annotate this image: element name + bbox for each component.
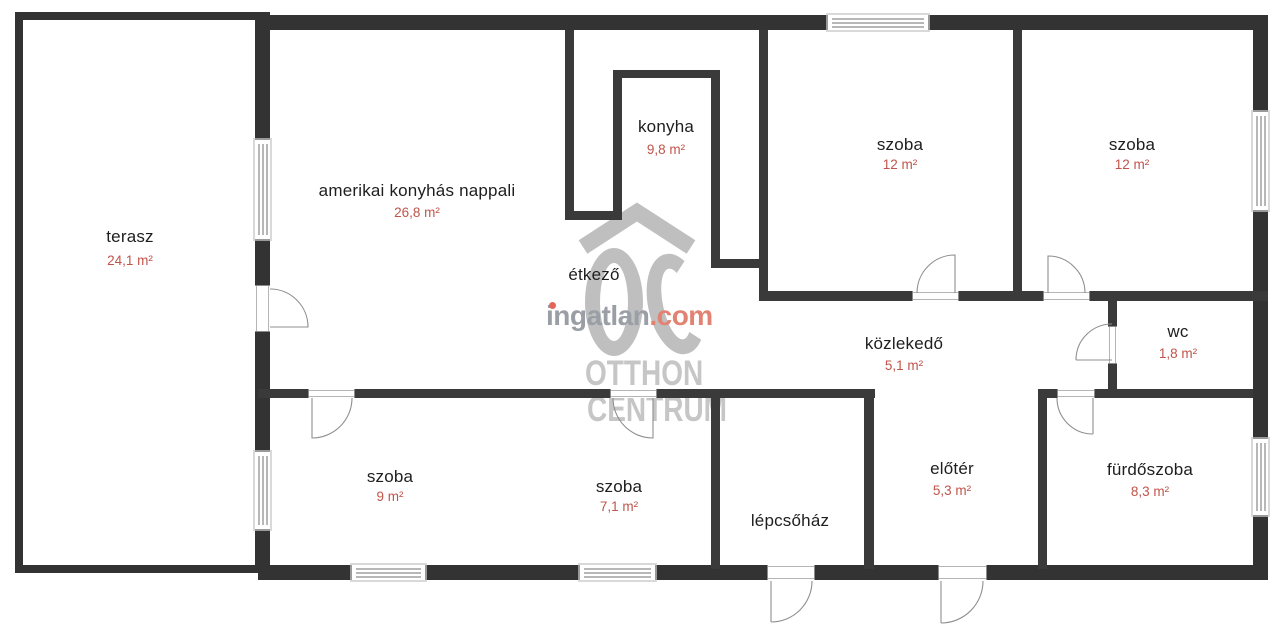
label-kozlekedo: közlekedő [865,334,943,354]
terrace-wall-bottom [15,565,270,573]
label-wc: wc [1167,322,1188,342]
door-staircase-exterior [767,565,815,580]
area-terasz: 24,1 m² [107,253,153,268]
label-furdoszoba: fürdőszoba [1107,460,1193,480]
label-szoba1: szoba [877,135,923,155]
window-bedroom2-right [1253,110,1268,212]
label-szoba4: szoba [596,477,642,497]
floorplan: ingatlan.com OTTHON CENTRUM [0,0,1280,631]
watermark-brand: ingatlan.com [546,300,713,332]
door-bedroom4 [610,389,657,398]
bedroom1-bedroom2-wall [1013,30,1022,295]
staircase-wall-left [711,389,720,569]
label-eloter: előtér [930,459,974,479]
door-terrace-livingroom [255,285,270,332]
kitchen-wall-right [711,70,720,268]
window-bathroom-right [1253,437,1268,517]
door-bedroom1 [912,291,959,301]
label-lepcsohaz: lépcsőház [751,511,829,531]
watermark-logo-c-icon [638,248,714,359]
label-szoba3: szoba [367,467,413,487]
staircase-hall-wall [864,389,874,569]
area-nappali: 26,8 m² [394,205,440,220]
area-szoba2: 12 m² [1115,157,1150,172]
watermark-line1: OTTHON [585,354,703,394]
label-terasz: terasz [106,227,154,247]
wc-wall-bottom [1108,389,1253,398]
watermark-roof-icon [0,0,1280,631]
watermark-i-dot-icon [549,302,556,309]
kitchen-wall-top [613,70,720,78]
label-szoba2: szoba [1109,135,1155,155]
area-wc: 1,8 m² [1159,346,1197,361]
label-etkezo: étkező [568,265,619,285]
exterior-wall-top [258,15,1268,30]
area-furdoszoba: 8,3 m² [1131,484,1169,499]
window-bedroom3-bottom [350,565,427,580]
door-swing-arcs [0,0,1280,631]
door-hall-exterior [938,565,987,580]
livingroom-bedroom1-wall [759,30,768,298]
door-bedroom2 [1043,291,1090,301]
area-szoba3: 9 m² [377,489,404,504]
terrace-wall-left [15,12,23,573]
shaft-wall-left [565,30,574,220]
window-bedroom1-top [826,15,930,30]
window-bedroom4-bottom [578,565,657,580]
area-eloter: 5,3 m² [933,483,971,498]
area-konyha: 9,8 m² [647,142,685,157]
label-nappali: amerikai konyhás nappali [319,181,516,201]
watermark-brand-tld: .com [649,300,712,331]
area-kozlekedo: 5,1 m² [885,358,923,373]
door-bathroom [1057,389,1095,398]
terrace-wall-top [15,12,270,20]
area-szoba1: 12 m² [883,157,918,172]
hall-bathroom-wall [1038,389,1047,569]
kitchen-wall-left [613,70,622,220]
label-konyha: konyha [638,117,694,137]
window-bedroom3-terrace [255,450,270,531]
area-szoba4: 7,1 m² [600,499,638,514]
window-livingroom-terrace-upper [255,138,270,241]
door-bedroom3 [308,389,355,398]
door-wc [1108,326,1117,364]
